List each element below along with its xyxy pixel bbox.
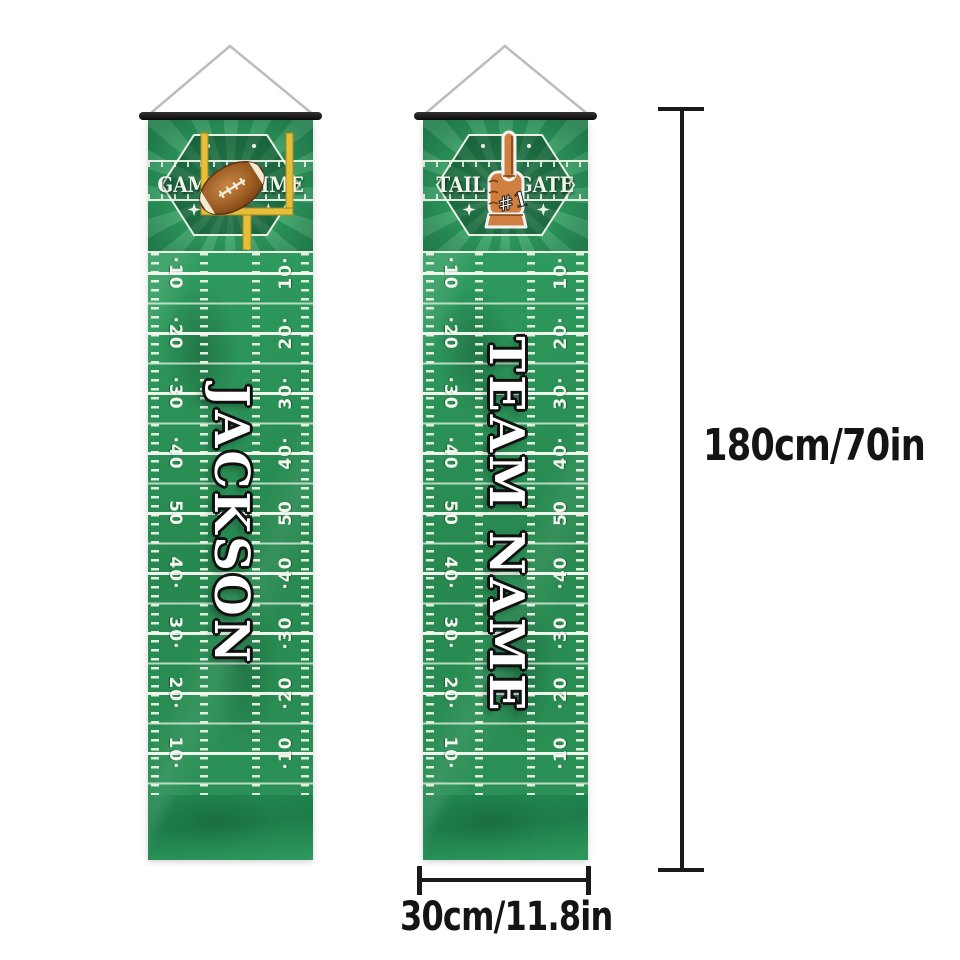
yard-number: 50 [276, 500, 296, 526]
banner-header: GAME TIME [148, 120, 313, 251]
yard-number: ·10 [551, 736, 571, 769]
yard-number: ·40 [440, 436, 460, 469]
yard-number: ·20 [440, 316, 460, 349]
banner-header: TAIL GATE [423, 120, 588, 251]
goalpost-football-icon [198, 132, 296, 250]
width-dimension-line [419, 878, 590, 882]
banner-footer [423, 795, 588, 860]
yard-number: 20· [276, 316, 296, 349]
width-dimension-label: 30cm/11.8in [400, 894, 608, 940]
hanging-rod [414, 112, 597, 120]
yard-number: 10· [276, 256, 296, 289]
yard-number: 50 [440, 500, 460, 526]
yard-number: 50 [165, 500, 185, 526]
yard-number: ·10 [440, 256, 460, 289]
foam-finger-icon: #1 [479, 128, 533, 230]
banner-name-text: TEAM NAME [478, 336, 534, 713]
hanging-rod [139, 112, 322, 120]
yard-number: ·20 [165, 316, 185, 349]
yard-number: 10· [440, 736, 460, 769]
yard-number: ·20 [276, 676, 296, 709]
yard-number: ·30 [276, 616, 296, 649]
left-banner: GAME TIME [148, 42, 313, 862]
banner-panel: TAIL GATE [423, 120, 588, 860]
hanging-string [139, 42, 322, 122]
banner-footer [148, 795, 313, 860]
banner-name-text: JACKSON [203, 384, 259, 665]
yard-number: 40· [276, 436, 296, 469]
width-dimension-cap-right [586, 866, 591, 895]
yard-number: ·40 [276, 556, 296, 589]
yard-field: ·10 ·20 ·30 ·40 50 40· 30· 20· 10· 10· 2… [148, 251, 313, 795]
yard-number: 30· [276, 376, 296, 409]
yard-number: 10· [551, 256, 571, 289]
yard-number: 50 [551, 500, 571, 526]
yard-number: 40· [440, 556, 460, 589]
yard-number: ·40 [551, 556, 571, 589]
yard-number: ·10 [165, 256, 185, 289]
yard-number: 40· [551, 436, 571, 469]
yard-number: 30· [551, 376, 571, 409]
yard-number: 10· [165, 736, 185, 769]
yard-number: 30· [165, 616, 185, 649]
yard-number: ·40 [165, 436, 185, 469]
hanging-string [414, 42, 597, 122]
banner-panel: GAME TIME [148, 120, 313, 860]
yard-number: ·30 [551, 616, 571, 649]
yard-number: 20· [165, 676, 185, 709]
height-dimension-line [680, 110, 684, 871]
right-banner: TAIL GATE [423, 42, 588, 862]
header-word-left: TAIL [436, 172, 485, 197]
height-dimension-cap-bottom [658, 868, 704, 872]
yard-number: 20· [440, 676, 460, 709]
yard-number: 40· [165, 556, 185, 589]
yard-number: ·20 [551, 676, 571, 709]
height-dimension-label: 180cm/70in [703, 420, 925, 471]
yard-field: ·10 ·20 ·30 ·40 50 40· 30· 20· 10· 10· 2… [423, 251, 588, 795]
product-photo: GAME TIME [0, 0, 960, 960]
yard-number: ·30 [165, 376, 185, 409]
yard-number: 20· [551, 316, 571, 349]
yard-number: ·30 [440, 376, 460, 409]
yard-number: ·10 [276, 736, 296, 769]
yard-number: 30· [440, 616, 460, 649]
